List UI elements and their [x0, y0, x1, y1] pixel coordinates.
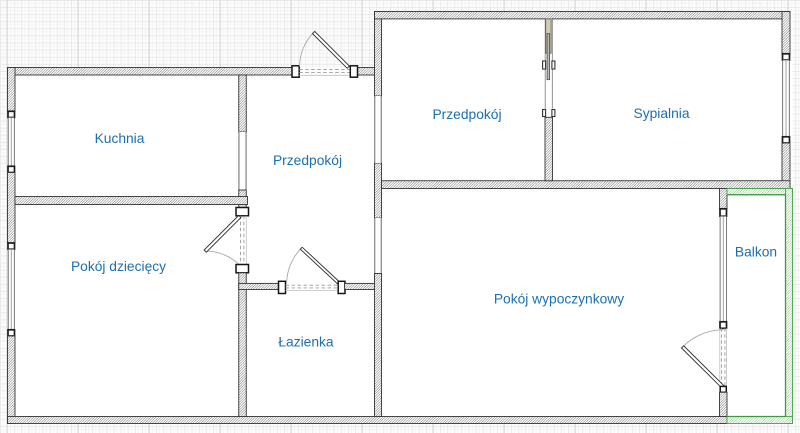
svg-text:Łazienka: Łazienka — [278, 335, 334, 350]
svg-text:Sypialnia: Sypialnia — [634, 106, 690, 121]
svg-text:Pokój wypoczynkowy: Pokój wypoczynkowy — [494, 292, 624, 307]
svg-text:Przedpokój: Przedpokój — [273, 153, 342, 168]
svg-text:Balkon: Balkon — [735, 245, 777, 260]
svg-text:Pokój dziecięcy: Pokój dziecięcy — [71, 259, 166, 274]
svg-text:Przedpokój: Przedpokój — [432, 107, 501, 122]
svg-text:Kuchnia: Kuchnia — [95, 131, 145, 146]
